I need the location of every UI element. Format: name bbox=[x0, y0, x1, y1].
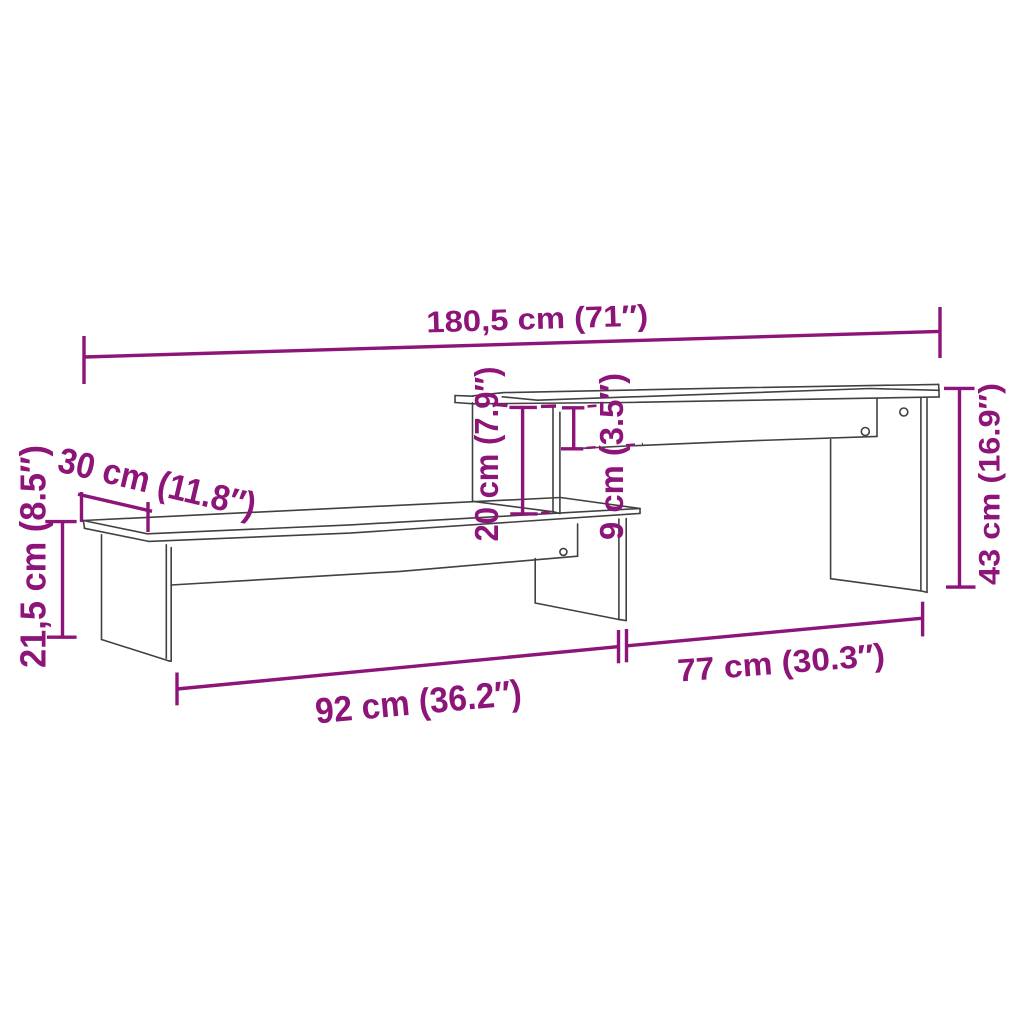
svg-text:43 cm (16.9″): 43 cm (16.9″) bbox=[974, 383, 1007, 585]
svg-text:9 cm (3.5″): 9 cm (3.5″) bbox=[593, 373, 630, 540]
svg-text:180,5 cm (71″): 180,5 cm (71″) bbox=[426, 300, 649, 340]
svg-text:20 cm (7.9″): 20 cm (7.9″) bbox=[469, 367, 506, 542]
svg-text:21,5 cm (8.5″): 21,5 cm (8.5″) bbox=[13, 445, 54, 668]
